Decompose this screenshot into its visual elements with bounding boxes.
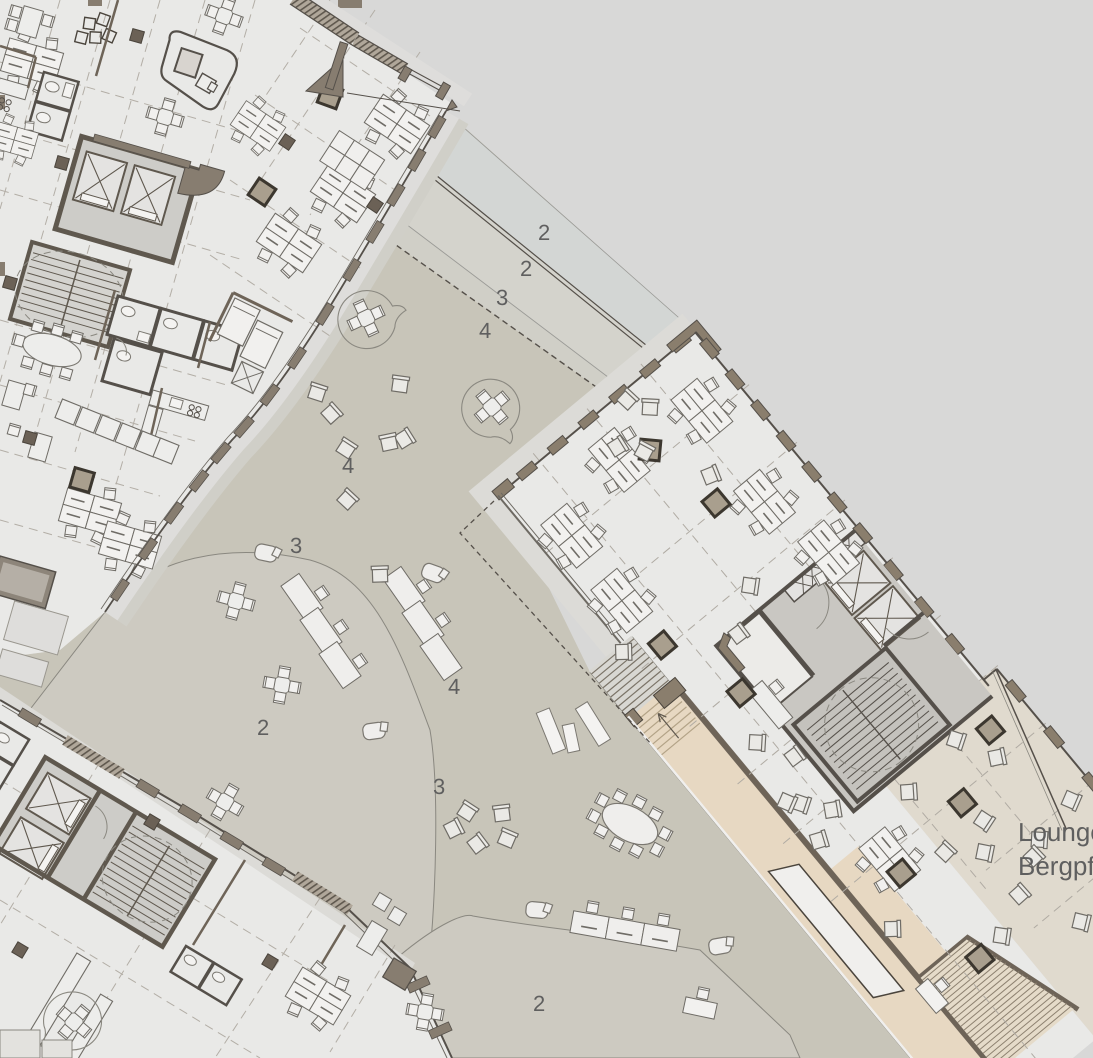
- svg-text:4: 4: [479, 318, 491, 343]
- svg-text:3: 3: [290, 533, 302, 558]
- svg-text:4: 4: [448, 674, 460, 699]
- svg-text:3: 3: [433, 774, 445, 799]
- svg-text:2: 2: [538, 220, 550, 245]
- svg-text:Bergpf: Bergpf: [1018, 851, 1093, 881]
- svg-text:2: 2: [257, 715, 269, 740]
- svg-text:2: 2: [520, 256, 532, 281]
- svg-text:4: 4: [342, 453, 354, 478]
- svg-text:2: 2: [533, 991, 545, 1016]
- svg-text:3: 3: [496, 285, 508, 310]
- svg-text:Lounge: Lounge: [1018, 817, 1093, 847]
